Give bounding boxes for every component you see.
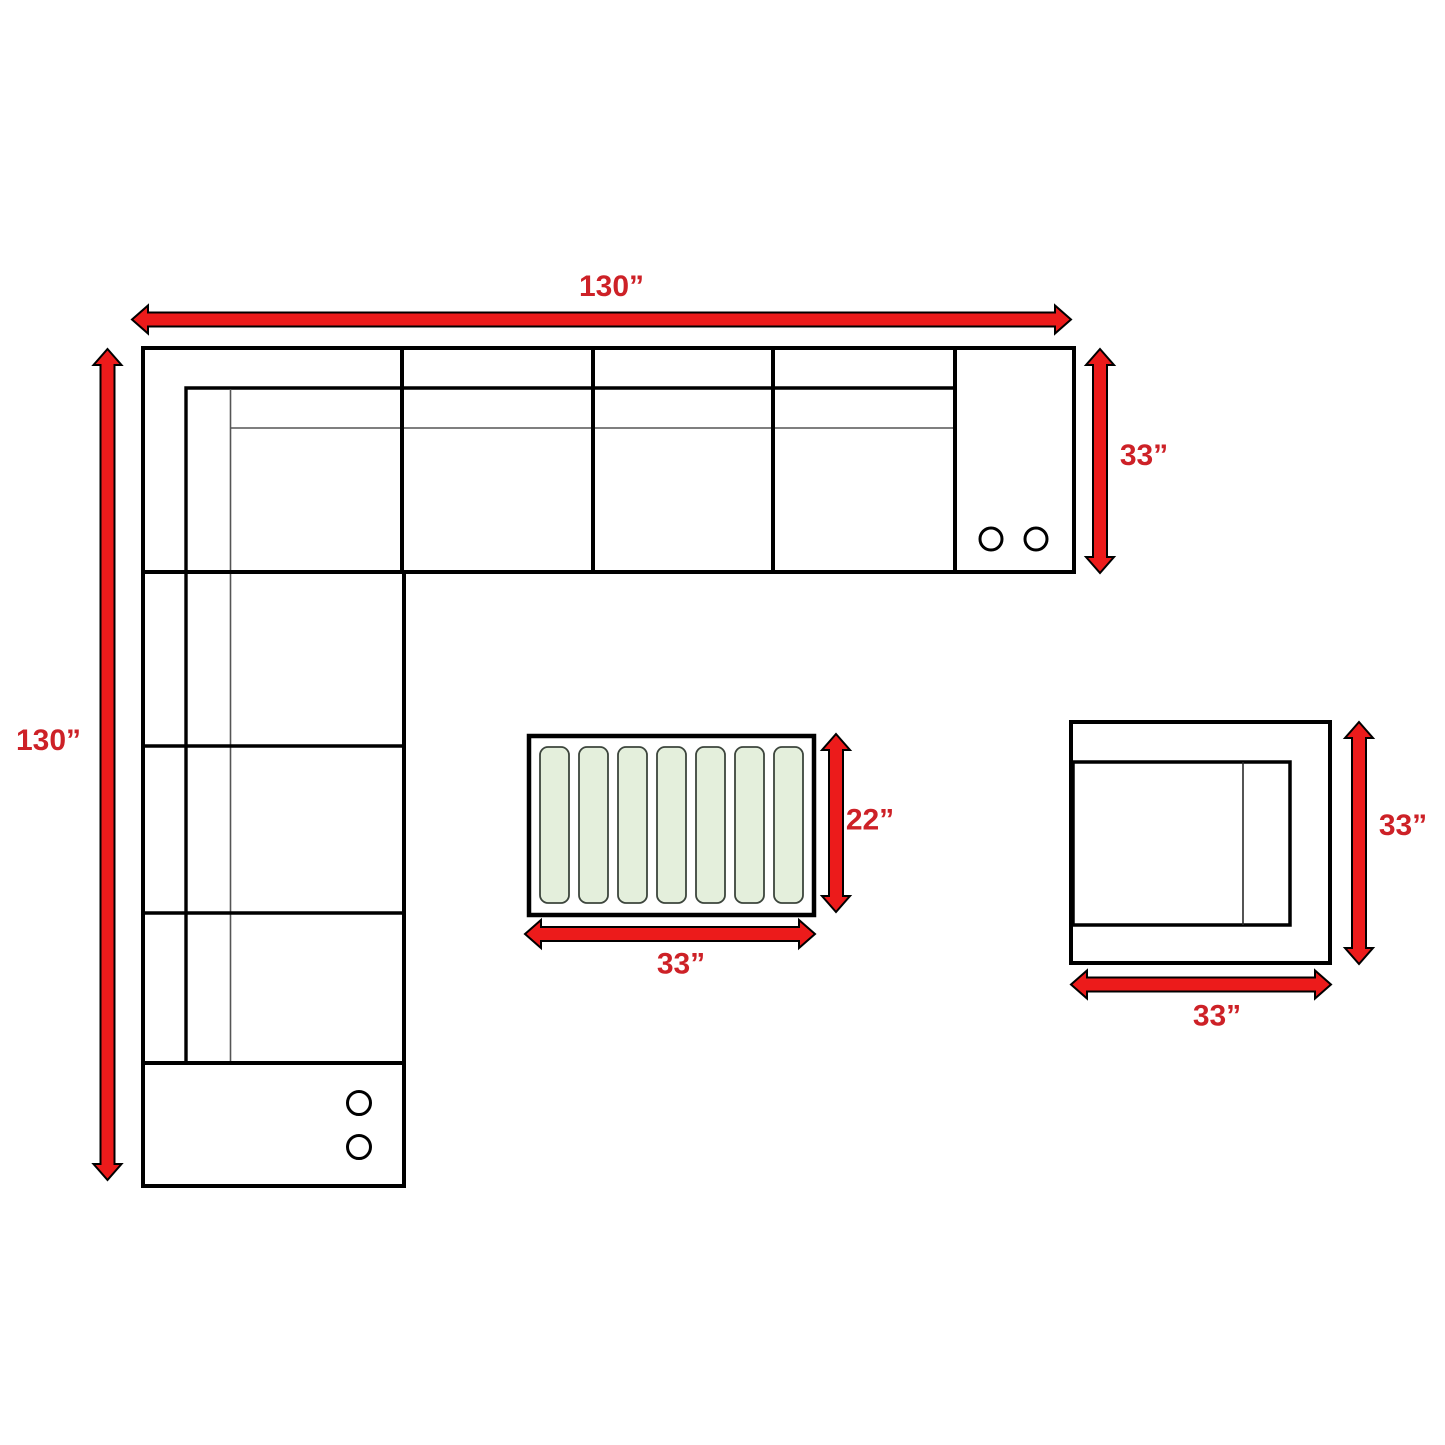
svg-text:33”: 33” bbox=[1379, 809, 1427, 842]
svg-text:33”: 33” bbox=[1193, 1000, 1241, 1033]
svg-text:130”: 130” bbox=[16, 724, 81, 757]
svg-text:22”: 22” bbox=[846, 804, 894, 837]
svg-text:33”: 33” bbox=[1120, 439, 1168, 472]
svg-text:33”: 33” bbox=[657, 948, 705, 981]
svg-text:130”: 130” bbox=[579, 270, 644, 303]
